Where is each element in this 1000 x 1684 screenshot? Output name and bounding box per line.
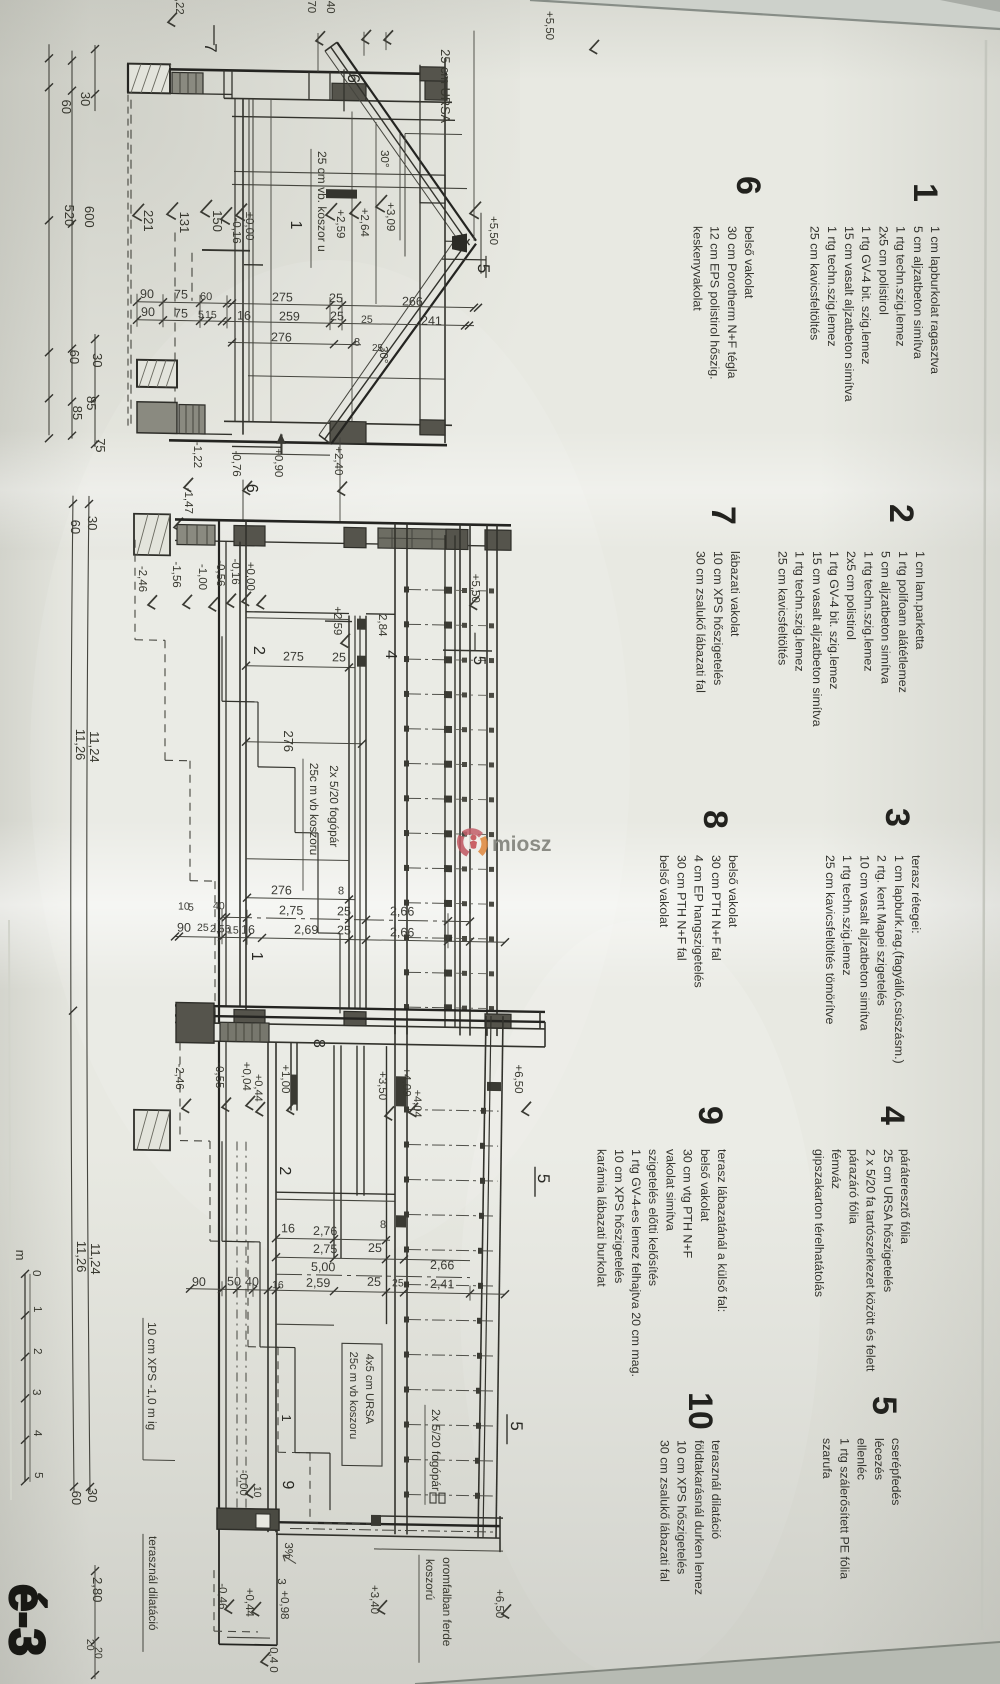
svg-text:1 rtg techn.szig.lemez: 1 rtg techn.szig.lemez [861, 551, 875, 672]
svg-text:1 rtg GV-4-es lemez felhajtva: 1 rtg GV-4-es lemez felhajtva 20 cm mag. [629, 1149, 643, 1377]
svg-text:30 cm zsalukő lábazati fal: 30 cm zsalukő lábazati fal [657, 1440, 671, 1582]
svg-text:6: 6 [243, 484, 260, 493]
svg-text:0: 0 [30, 1270, 42, 1277]
svg-text:25 cm URSA: 25 cm URSA [438, 49, 453, 124]
svg-text:16: 16 [281, 1221, 295, 1235]
svg-text:2: 2 [882, 504, 920, 523]
svg-text:+0,98: +0,98 [278, 1590, 290, 1619]
svg-text:25 cm vb. koszor u: 25 cm vb. koszor u [315, 151, 329, 252]
svg-text:11,26: 11,26 [74, 1241, 89, 1273]
svg-text:+0,44: +0,44 [243, 1588, 255, 1618]
svg-text:10 cm XPS -1,0 m ig: 10 cm XPS -1,0 m ig [145, 1322, 159, 1430]
svg-text:koszorú: koszorú [423, 1559, 437, 1601]
svg-text:2,80: 2,80 [90, 1577, 105, 1603]
svg-text:6: 6 [344, 73, 363, 83]
svg-text:25: 25 [197, 922, 209, 934]
svg-text:-0,76: -0,76 [230, 450, 242, 476]
svg-text:+5,50: +5,50 [543, 11, 555, 40]
svg-text:+3,40: +3,40 [368, 1585, 380, 1614]
svg-text:5: 5 [32, 1472, 44, 1479]
svg-text:2: 2 [276, 1166, 293, 1175]
svg-text:lábazati vakolat: lábazati vakolat [728, 551, 742, 637]
svg-text:600: 600 [82, 206, 97, 228]
svg-text:4: 4 [382, 650, 399, 659]
svg-text:karámia lábazati burkolat: karámia lábazati burkolat [595, 1149, 609, 1287]
svg-text:60: 60 [67, 350, 82, 365]
svg-text:5: 5 [534, 1174, 553, 1184]
svg-text:221: 221 [141, 210, 156, 232]
svg-text:oromfalban ferde: oromfalban ferde [440, 1557, 454, 1647]
svg-text:2: 2 [250, 646, 267, 655]
svg-text:30: 30 [85, 1488, 100, 1503]
svg-text:belső vakolat: belső vakolat [698, 1149, 712, 1222]
svg-text:+3,09: +3,09 [384, 202, 396, 231]
svg-text:+4,09: +4,09 [400, 1067, 412, 1096]
svg-text:4x5 cm URSA: 4x5 cm URSA [363, 1354, 375, 1425]
svg-text:±0,00: ±0,00 [243, 212, 255, 241]
svg-text:-0,00: -0,00 [237, 1470, 249, 1496]
svg-text:5: 5 [507, 1421, 526, 1431]
svg-text:miosz: miosz [492, 833, 552, 856]
svg-text:15: 15 [205, 309, 217, 321]
svg-text:-1,47: -1,47 [182, 488, 194, 514]
svg-text:25: 25 [367, 1275, 381, 1289]
svg-text:m: m [13, 1250, 28, 1261]
svg-text:25 cm URSA hőszigetelés: 25 cm URSA hőszigetelés [881, 1149, 895, 1292]
svg-text:90: 90 [177, 920, 191, 934]
svg-text:5: 5 [470, 656, 489, 666]
svg-text:2: 2 [31, 1348, 43, 1355]
svg-text:10 cm XPS hőszigetelés: 10 cm XPS hőszigetelés [612, 1149, 626, 1283]
svg-text:8: 8 [354, 337, 360, 349]
svg-text:2x 5/20 fogópár: 2x 5/20 fogópár [327, 765, 341, 847]
svg-text:terasz rétegei:: terasz rétegei: [909, 855, 923, 934]
svg-text:85: 85 [70, 406, 85, 421]
svg-text:25: 25 [372, 343, 384, 354]
svg-text:3: 3 [275, 1578, 287, 1585]
svg-text:5: 5 [188, 902, 194, 914]
svg-text:1 rtg GV-4 bit. szig.lemez: 1 rtg GV-4 bit. szig.lemez [827, 551, 841, 689]
svg-text:-0,16: -0,16 [229, 558, 241, 584]
svg-text:2,69: 2,69 [294, 923, 318, 937]
svg-text:5 cm aljzatbeton simítva: 5 cm aljzatbeton simítva [911, 226, 925, 359]
svg-text:30: 30 [85, 516, 100, 531]
svg-text:266: 266 [402, 294, 423, 308]
svg-text:-0,56: -0,56 [214, 560, 226, 586]
svg-text:5: 5 [198, 309, 204, 321]
svg-text:lécezés: lécezés [872, 1438, 886, 1480]
svg-text:1 rtg szálerősített PE fólia: 1 rtg szálerősített PE fólia [837, 1438, 851, 1579]
svg-text:90: 90 [140, 287, 154, 301]
svg-text:3: 3 [30, 1389, 42, 1396]
svg-text:1 rtg GV-4 bit. szig.lemez: 1 rtg GV-4 bit. szig.lemez [859, 226, 873, 364]
svg-text:-1,22: -1,22 [173, 0, 185, 15]
svg-text:+2,59: +2,59 [334, 209, 346, 238]
svg-text:belső vakolat: belső vakolat [742, 226, 756, 299]
svg-text:+4,04: +4,04 [411, 1090, 423, 1118]
svg-text:15: 15 [227, 924, 239, 936]
svg-text:+5,50: +5,50 [469, 574, 481, 603]
svg-text:1 rtg techn.szig.lemez: 1 rtg techn.szig.lemez [825, 226, 839, 347]
svg-text:terasznál dilatáció: terasznál dilatáció [146, 1536, 160, 1631]
svg-text:+1,00: +1,00 [279, 1064, 291, 1093]
svg-text:-1,22: -1,22 [191, 442, 203, 468]
svg-text:1: 1 [31, 1306, 43, 1313]
svg-text:90: 90 [141, 305, 155, 319]
svg-text:75: 75 [93, 438, 108, 453]
svg-text:8: 8 [380, 1219, 386, 1231]
svg-text:2,66: 2,66 [430, 1258, 454, 1272]
svg-text:1 rtg polifoam alátétlemez: 1 rtg polifoam alátétlemez [896, 551, 910, 693]
svg-text:1 rtg techn.szig.lemez: 1 rtg techn.szig.lemez [840, 855, 854, 976]
svg-text:30°: 30° [378, 150, 390, 168]
svg-text:60: 60 [59, 99, 74, 114]
svg-text:2,59: 2,59 [306, 1276, 330, 1290]
svg-text:cserépfedés: cserépfedés [889, 1438, 903, 1506]
svg-text:2x5 cm polistirol: 2x5 cm polistirol [876, 226, 890, 315]
svg-text:15 cm vasalt aljzatbeton simít: 15 cm vasalt aljzatbeton simítva [810, 551, 824, 727]
svg-text:25: 25 [361, 314, 373, 326]
svg-text:-0,55: -0,55 [213, 1062, 225, 1088]
svg-text:5: 5 [474, 264, 493, 274]
svg-text:11,24: 11,24 [87, 731, 102, 763]
svg-text:é-3: é-3 [0, 1583, 55, 1656]
svg-text:vakolat simítva: vakolat simítva [663, 1149, 677, 1231]
svg-text:1 cm lam.parketta: 1 cm lam.parketta [913, 551, 927, 650]
svg-text:2,84: 2,84 [376, 614, 388, 637]
svg-text:10 cm vasalt aljzatbeton simít: 10 cm vasalt aljzatbeton simítva [857, 855, 871, 1031]
svg-text:2,75: 2,75 [313, 1242, 337, 1256]
svg-text:2x 5/20 fogópár: 2x 5/20 fogópár [429, 1409, 443, 1491]
svg-text:15 cm vasalt aljzatbeton simít: 15 cm vasalt aljzatbeton simítva [842, 226, 856, 402]
svg-text:60: 60 [69, 1491, 84, 1506]
svg-text:2 x 5/20 fa tartószerkezet köz: 2 x 5/20 fa tartószerkezet között és fel… [864, 1149, 878, 1372]
svg-text:9: 9 [691, 1106, 729, 1125]
svg-text:+0,04: +0,04 [240, 1062, 252, 1092]
svg-text:1: 1 [906, 183, 944, 202]
svg-text:9: 9 [279, 1480, 296, 1489]
svg-text:+0,00: +0,00 [244, 562, 256, 591]
svg-text:2 rtg. kent Mapei szigetelés: 2 rtg. kent Mapei szigetelés [875, 855, 889, 1006]
svg-text:7: 7 [201, 43, 220, 53]
svg-text:terasznál dilatáció: terasznál dilatáció [709, 1440, 723, 1539]
svg-text:gipszakarton térelhatátolás: gipszakarton térelhatátolás [812, 1149, 826, 1297]
svg-text:16: 16 [272, 1279, 284, 1291]
svg-text:10: 10 [251, 1486, 263, 1498]
svg-text:-0,16: -0,16 [230, 217, 242, 243]
svg-text:8: 8 [696, 810, 734, 829]
svg-text:131: 131 [177, 211, 192, 233]
svg-text:60: 60 [200, 291, 212, 303]
svg-text:-0,46: -0,46 [216, 1583, 228, 1609]
svg-text:2,66: 2,66 [390, 925, 414, 939]
svg-text:30 cm PTH N+F fal: 30 cm PTH N+F fal [674, 855, 688, 961]
svg-text:25: 25 [392, 1277, 404, 1289]
svg-text:2,70: 2,70 [305, 0, 317, 13]
svg-text:terasz lábazatánál a külső fa: terasz lábazatánál a külső fal: [715, 1149, 729, 1312]
svg-text:11,26: 11,26 [73, 729, 88, 761]
svg-text:5,00: 5,00 [311, 1260, 335, 1274]
svg-text:40: 40 [213, 900, 225, 912]
svg-text:párazáró fólia: párazáró fólia [846, 1149, 860, 1224]
svg-text:25c m vb koszoru: 25c m vb koszoru [347, 1351, 359, 1439]
svg-text:30 cm zsalukő lábazati fal: 30 cm zsalukő lábazati fal [694, 551, 708, 693]
svg-text:2,40: 2,40 [324, 0, 336, 14]
svg-text:1 cm lapburkolat ragasztva: 1 cm lapburkolat ragasztva [928, 226, 942, 374]
svg-text:2x5 cm polistirol: 2x5 cm polistirol [844, 551, 858, 640]
svg-text:+6,50: +6,50 [512, 1064, 524, 1093]
svg-text:fémváz: fémváz [829, 1149, 843, 1189]
svg-text:276: 276 [271, 883, 292, 897]
svg-text:7: 7 [704, 506, 742, 525]
svg-text:20: 20 [84, 1639, 96, 1651]
svg-text:+0,44: +0,44 [252, 1074, 264, 1102]
svg-text:11,24: 11,24 [88, 1243, 103, 1275]
svg-text:1 cm lapburk.rag.(fagyálló,csú: 1 cm lapburk.rag.(fagyálló,csúszásm.) [892, 855, 906, 1064]
svg-text:12 cm EPS polistirol hőszig.: 12 cm EPS polistirol hőszig. [708, 226, 722, 380]
svg-text:25 cm kavicsfeltöltés: 25 cm kavicsfeltöltés [808, 226, 822, 340]
svg-text:30: 30 [78, 92, 93, 107]
svg-text:75: 75 [174, 287, 188, 301]
svg-text:-2,46: -2,46 [136, 566, 148, 592]
svg-text:ellenléc: ellenléc [855, 1438, 869, 1480]
svg-text:25: 25 [368, 1241, 382, 1255]
svg-text:40: 40 [245, 1275, 259, 1289]
svg-text:belső vakolat: belső vakolat [657, 855, 671, 928]
svg-text:3: 3 [878, 808, 916, 827]
svg-text:75: 75 [174, 306, 188, 320]
svg-text:páráteresztő fólia: páráteresztő fólia [898, 1149, 912, 1244]
svg-text:+2,64: +2,64 [358, 208, 370, 238]
svg-text:275: 275 [272, 290, 293, 304]
svg-text:2,66: 2,66 [390, 904, 414, 918]
svg-text:90: 90 [192, 1275, 206, 1289]
svg-text:1 rtg techn.szig.lemez: 1 rtg techn.szig.lemez [793, 551, 807, 672]
svg-text:belső vakolat: belső vakolat [726, 855, 740, 928]
svg-text:szigetelés előtti kelősítés: szigetelés előtti kelősítés [646, 1149, 660, 1286]
svg-text:keskenyvakolat: keskenyvakolat [690, 226, 704, 311]
svg-text:276: 276 [271, 330, 292, 344]
svg-text:30: 30 [90, 353, 105, 368]
svg-text:276: 276 [281, 730, 296, 752]
svg-text:259: 259 [279, 309, 300, 323]
svg-text:+2,40: +2,40 [332, 446, 344, 475]
svg-text:520: 520 [62, 204, 77, 226]
svg-text:1: 1 [248, 952, 265, 961]
svg-text:földtakarásnál durken lemez: földtakarásnál durken lemez [692, 1440, 706, 1595]
svg-text:10 cm XPS hőszigetelés: 10 cm XPS hőszigetelés [711, 551, 725, 685]
svg-text:10: 10 [681, 1392, 719, 1430]
svg-text:6: 6 [729, 176, 767, 195]
svg-text:4 cm EP hangszigetelés: 4 cm EP hangszigetelés [692, 855, 706, 988]
svg-text:85: 85 [84, 396, 99, 411]
svg-text:16: 16 [241, 923, 255, 937]
svg-text:30 cm vtg PTH N+F: 30 cm vtg PTH N+F [681, 1149, 695, 1259]
svg-text:+0,90: +0,90 [272, 448, 284, 477]
svg-text:50: 50 [227, 1274, 241, 1288]
svg-text:25: 25 [329, 291, 343, 305]
svg-text:4: 4 [873, 1106, 911, 1125]
svg-text:+5,50: +5,50 [487, 216, 499, 245]
svg-text:-1,00: -1,00 [196, 564, 208, 590]
svg-text:1 rtg techn.szig.lemez: 1 rtg techn.szig.lemez [894, 226, 908, 347]
svg-text:275: 275 [283, 649, 304, 663]
svg-text:60: 60 [68, 520, 83, 535]
svg-text:szarufa: szarufa [820, 1438, 834, 1479]
svg-text:10 cm XPS hőszigetelés: 10 cm XPS hőszigetelés [675, 1440, 689, 1574]
svg-text:8: 8 [338, 885, 344, 897]
svg-text:4: 4 [31, 1430, 43, 1437]
svg-text:8: 8 [310, 1039, 327, 1048]
svg-text:+6,50: +6,50 [493, 1589, 505, 1618]
svg-text:-2,46: -2,46 [173, 1063, 185, 1089]
svg-text:241: 241 [421, 314, 442, 328]
svg-text:-1,56: -1,56 [170, 561, 182, 587]
svg-text:25c m vb koszoru: 25c m vb koszoru [307, 763, 321, 856]
svg-text:30 cm PTH N+F fal: 30 cm PTH N+F fal [709, 855, 723, 961]
svg-text:25 cm kavicsfeltöltés tömörítv: 25 cm kavicsfeltöltés tömörítve [823, 855, 837, 1025]
svg-text:0,4 0: 0,4 0 [267, 1647, 279, 1673]
svg-text:+3,50: +3,50 [376, 1071, 388, 1100]
svg-text:2,75: 2,75 [279, 903, 303, 917]
svg-text:5: 5 [865, 1396, 903, 1415]
svg-text:2,76: 2,76 [313, 1224, 337, 1238]
svg-text:25 cm kavicsfeltöltés: 25 cm kavicsfeltöltés [775, 551, 789, 665]
svg-text:16: 16 [237, 309, 251, 323]
svg-text:1: 1 [287, 220, 304, 229]
svg-text:2,41: 2,41 [430, 1277, 454, 1291]
svg-text:1: 1 [279, 1414, 294, 1421]
svg-text:5 cm aljzatbeton simítva: 5 cm aljzatbeton simítva [879, 551, 893, 684]
svg-text:25: 25 [337, 904, 351, 918]
svg-text:30 cm Porotherm N+F tégla: 30 cm Porotherm N+F tégla [725, 226, 739, 379]
svg-text:25: 25 [332, 650, 346, 664]
svg-text:25: 25 [337, 923, 351, 937]
